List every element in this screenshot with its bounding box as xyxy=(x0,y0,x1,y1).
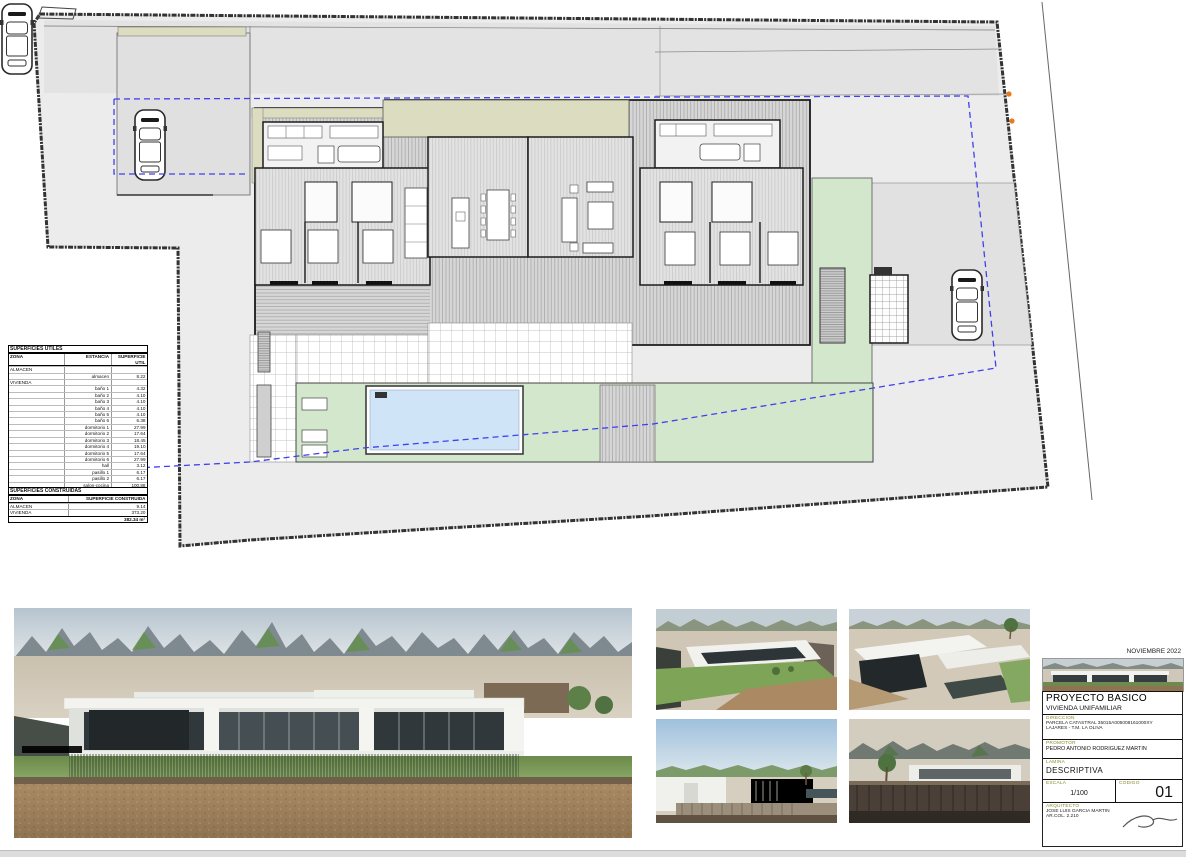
table-row: baño 2 4.10 xyxy=(9,392,147,398)
sheet-date: NOVIEMBRE 2022 xyxy=(1127,648,1181,655)
escala-value: 1/100 xyxy=(1046,790,1112,797)
site-plan xyxy=(0,0,1186,575)
table-rows: ALMACEN 9.14 VIVIENDA 373.20 xyxy=(9,503,147,516)
bath-block-left xyxy=(263,122,383,169)
bed xyxy=(768,232,798,265)
kitchen-dining xyxy=(428,137,528,257)
table-header: ZONA SUPERFICIE CONSTRUIDA xyxy=(9,495,147,502)
car-right xyxy=(950,270,984,340)
ensuite-4 xyxy=(712,182,752,222)
table-row: dormitorio 6 27.99 xyxy=(9,456,147,462)
table-row: baño 4 4.10 xyxy=(9,405,147,411)
bed xyxy=(308,230,338,263)
table-row: dormitorio 1 27.99 xyxy=(9,424,147,430)
drawing-sheet: { "date": "NOVIEMBRE 2022", "tables": { … xyxy=(0,0,1186,858)
promotor-name: PEDRO ANTONIO RODRIGUEZ MARTIN xyxy=(1046,746,1179,752)
bedrooms-left xyxy=(255,168,430,285)
table-row: baño 1 4.32 xyxy=(9,385,147,391)
table-row: baño 6 6.38 xyxy=(9,417,147,423)
table-row: pasillo 1 6.17 xyxy=(9,469,147,475)
title-block: NOVIEMBRE 2022 PROYECTO BASICO VIVIENDA … xyxy=(1042,608,1183,846)
fence xyxy=(676,803,837,817)
table-row: dormitorio 2 17.64 xyxy=(9,430,147,436)
road-edge xyxy=(1042,2,1092,500)
table-row: baño 3 4.10 xyxy=(9,398,147,404)
render-aerial-2 xyxy=(849,609,1030,710)
table-row: pasillo 2 6.17 xyxy=(9,475,147,481)
table-row: VIVIENDA 373.20 xyxy=(9,509,147,515)
page-edge-bar xyxy=(0,850,1186,857)
table-row: hall 3.12 xyxy=(9,462,147,468)
ensuite-1 xyxy=(305,182,337,222)
kitchen-island xyxy=(452,198,469,248)
wardrobe xyxy=(405,188,427,258)
lamina-label: LAMINA xyxy=(1046,760,1179,765)
sun-lounger xyxy=(302,398,327,410)
rendered-house xyxy=(64,683,613,758)
garden-deck xyxy=(600,385,655,462)
storage-building xyxy=(870,267,908,343)
dining-table xyxy=(487,190,509,240)
codigo-value: 01 xyxy=(1119,784,1179,802)
dark-box xyxy=(89,710,189,750)
ensuite-3 xyxy=(660,182,692,222)
table-superficies-construidas: SUPERFICIES CONSTRUIDAS ZONA SUPERFICIE … xyxy=(8,487,148,523)
table-title: SUPERFICIES UTILES xyxy=(9,346,147,353)
glass-band xyxy=(374,712,504,750)
pool xyxy=(366,386,523,454)
sofa-l xyxy=(562,198,577,242)
table-total: 382.34 m² xyxy=(9,516,147,522)
direccion-line2: LAJARES - T.M. LA OLIVA xyxy=(1046,726,1179,731)
table-row: dormitorio 3 18.45 xyxy=(9,437,147,443)
sun-lounger xyxy=(302,430,327,442)
stone-wall xyxy=(14,777,632,785)
bedrooms-right xyxy=(640,168,803,285)
car xyxy=(0,4,34,74)
roof-slab xyxy=(64,698,524,709)
table-row: almacen 8.22 xyxy=(9,373,147,379)
titleblock-thumbnail xyxy=(1042,658,1184,692)
bed xyxy=(665,232,695,265)
table-row: baño 5 4.10 xyxy=(9,411,147,417)
table-row: ALMACEN xyxy=(9,366,147,372)
table-title: SUPERFICIES CONSTRUIDAS xyxy=(9,488,147,495)
table-superficies-utiles: SUPERFICIES UTILES ZONA ESTANCIA SUPERFI… xyxy=(8,345,148,508)
pool-steps xyxy=(375,392,387,398)
pool xyxy=(806,789,837,798)
survey-marker xyxy=(1006,91,1011,96)
bed xyxy=(363,230,393,263)
lamina-value: DESCRIPTIVA xyxy=(1046,766,1179,775)
table-header: ZONA ESTANCIA SUPERFICIE UTIL xyxy=(9,353,147,366)
shower xyxy=(744,144,760,161)
table-row: dormitorio 5 17.64 xyxy=(9,450,147,456)
shower xyxy=(318,146,334,163)
render-main xyxy=(14,608,632,838)
tree xyxy=(595,696,613,714)
bath-block-right xyxy=(655,120,780,168)
bathtub xyxy=(338,146,380,162)
table-row: ALMACEN 9.14 xyxy=(9,503,147,509)
survey-marker xyxy=(1009,118,1014,123)
fence xyxy=(69,754,519,778)
bed xyxy=(261,230,291,263)
table-row: VIVIENDA xyxy=(9,379,147,385)
pergola-strip xyxy=(383,100,629,137)
render-street-4 xyxy=(849,719,1030,823)
planter xyxy=(257,385,271,457)
bed xyxy=(720,232,750,265)
table-row: dormitorio 4 19.10 xyxy=(9,443,147,449)
project-subtitle: VIVIENDA UNIFAMILIAR xyxy=(1046,705,1179,712)
tv-bench xyxy=(587,182,613,192)
white-building xyxy=(751,779,813,803)
signature xyxy=(1121,811,1179,835)
sofa xyxy=(588,202,613,229)
living-room xyxy=(528,137,633,257)
table-rows: ALMACEN almacen 8.22 VIVIENDA baño 1 4.3… xyxy=(9,366,147,501)
tree xyxy=(567,686,591,710)
canopy-strip xyxy=(118,27,246,36)
dark-fence xyxy=(849,785,1030,811)
ensuite-2 xyxy=(352,182,392,222)
project-title: PROYECTO BASICO xyxy=(1046,693,1179,704)
louvered-door xyxy=(820,268,845,343)
house xyxy=(252,100,810,345)
outdoor-shower xyxy=(258,332,270,372)
car-left xyxy=(133,110,167,180)
bathtub xyxy=(700,144,740,160)
render-view-3 xyxy=(656,719,837,823)
render-aerial-1 xyxy=(656,609,837,710)
escala-label: ESCALA xyxy=(1046,781,1112,786)
titleblock-fields: PROYECTO BASICO VIVIENDA UNIFAMILIAR DIR… xyxy=(1042,691,1183,847)
